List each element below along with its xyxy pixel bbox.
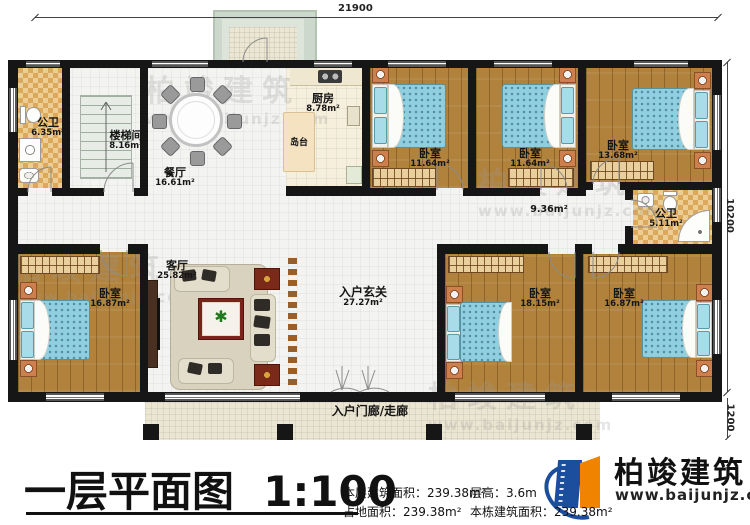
dimension-line-top xyxy=(35,17,718,18)
sink xyxy=(637,193,654,207)
bed-sheet xyxy=(498,302,512,362)
brand-site: www.baijunjz.com xyxy=(615,486,750,504)
back-porch-tile xyxy=(229,27,297,64)
window xyxy=(494,61,552,67)
nightstand xyxy=(694,152,711,169)
wall xyxy=(618,244,712,254)
nightstand xyxy=(559,66,576,83)
bed-sheet xyxy=(678,88,694,150)
title-block: 一层平面图 1:100 本层建筑面积：239.38m² 占地面积：239.38m… xyxy=(0,440,750,525)
wall xyxy=(625,226,633,244)
side-table xyxy=(254,364,280,386)
pillow xyxy=(21,302,34,329)
porch-pillar xyxy=(143,424,159,440)
window xyxy=(713,95,721,150)
wall xyxy=(578,182,593,190)
dining-chair xyxy=(190,77,205,92)
wall xyxy=(52,188,104,196)
wardrobe xyxy=(372,168,436,187)
room-label-dining: 餐厅16.61m² xyxy=(146,167,204,189)
logo-tower-blue xyxy=(554,460,582,508)
room-label-bedroom-left: 卧室16.87m² xyxy=(78,288,142,310)
room-label-public-bath-1: 公卫6.35m² xyxy=(22,117,74,139)
bed-sheet xyxy=(682,300,696,358)
window xyxy=(713,300,721,354)
washing-machine xyxy=(19,138,41,162)
stat-floor-height: 层高：3.6m xyxy=(470,484,537,501)
wall xyxy=(134,188,148,196)
nightstand xyxy=(696,284,713,301)
nightstand xyxy=(559,150,576,167)
plant: ✱ xyxy=(212,308,230,326)
dimension-top: 21900 xyxy=(338,3,373,14)
wall xyxy=(468,68,476,196)
window xyxy=(713,188,721,222)
room-label-porch: 入户门廊/走廊 xyxy=(300,405,440,418)
wall xyxy=(140,244,148,392)
window xyxy=(165,393,300,401)
porch-pillar xyxy=(277,424,293,440)
pillow xyxy=(695,92,708,119)
window xyxy=(634,61,688,67)
stat-land-area: 占地面积：239.38m² xyxy=(343,503,462,520)
wall xyxy=(437,244,548,254)
porch-pillar xyxy=(576,424,592,440)
wall xyxy=(8,244,100,254)
room-label-living: 客厅25.82m² xyxy=(148,260,206,282)
nightstand xyxy=(446,286,463,303)
dining-chair xyxy=(152,114,167,129)
pillow xyxy=(695,121,708,148)
room-label-hallway: 9.36m² xyxy=(526,205,572,216)
stat-total-area: 本栋建筑面积：239.38m² xyxy=(470,503,613,520)
pillow xyxy=(21,331,34,358)
floor-plan-page: 21900 10200 1200 柏竣建筑www.baijunjz.com 柏竣… xyxy=(0,0,750,525)
nightstand xyxy=(446,362,463,379)
pillow xyxy=(374,117,387,144)
dining-table-inner xyxy=(177,101,215,139)
kitchen-cabinet xyxy=(346,166,362,184)
window xyxy=(9,300,17,360)
dimension-right: 10200 xyxy=(724,198,735,233)
wall xyxy=(463,188,476,196)
room-label-bedroom-top-1: 卧室11.64m² xyxy=(402,148,458,170)
room-label-public-bath-2: 公卫5.11m² xyxy=(640,208,692,230)
pillow xyxy=(374,87,387,114)
nightstand xyxy=(696,360,713,377)
window xyxy=(612,393,680,401)
sofa-cushion xyxy=(254,334,270,346)
sofa-cushion xyxy=(254,299,270,311)
room-label-bedroom-top-2: 卧室11.64m² xyxy=(502,148,558,170)
room-label-stairwell: 楼梯间8.16m² xyxy=(96,130,156,152)
wardrobe xyxy=(20,256,100,274)
nightstand xyxy=(20,360,37,377)
sofa-cushion xyxy=(253,315,271,329)
nightstand xyxy=(694,72,711,89)
title-underline xyxy=(26,512,358,515)
wall xyxy=(8,60,722,68)
window xyxy=(152,61,208,67)
dining-chair xyxy=(190,151,205,166)
pillow xyxy=(447,334,460,360)
wall xyxy=(286,186,370,196)
room-label-bedroom-top-3: 卧室13.68m² xyxy=(590,140,646,162)
window xyxy=(46,393,104,401)
side-table xyxy=(254,268,280,290)
room-label-kitchen: 厨房8.78m² xyxy=(296,93,350,115)
wall xyxy=(575,244,583,392)
pillow xyxy=(697,331,710,356)
page-title: 一层平面图 1:100 xyxy=(24,458,397,519)
sofa-cushion xyxy=(208,363,222,374)
window xyxy=(388,61,446,67)
window xyxy=(455,393,545,401)
window xyxy=(9,88,17,132)
wall xyxy=(620,182,712,190)
wardrobe xyxy=(508,168,574,187)
wall xyxy=(362,68,370,196)
pillow xyxy=(561,87,574,114)
wall xyxy=(437,244,445,392)
dimension-right-lower: 1200 xyxy=(724,404,735,432)
room-label-foyer: 入户玄关27.27m² xyxy=(320,286,406,309)
porch-pillar xyxy=(426,424,442,440)
wardrobe xyxy=(588,256,668,273)
wardrobe xyxy=(448,256,524,273)
tv xyxy=(157,298,160,350)
cooktop xyxy=(318,70,342,83)
nightstand xyxy=(372,150,389,167)
nightstand xyxy=(372,66,389,83)
pillow xyxy=(561,117,574,144)
partition-screen xyxy=(288,258,297,388)
bed-sheet xyxy=(544,84,560,148)
dining-chair xyxy=(227,114,242,129)
wall xyxy=(370,188,436,196)
wall xyxy=(476,188,540,196)
sink xyxy=(19,168,39,183)
room-label-island: 岛台 xyxy=(283,138,315,148)
room-label-bedroom-bottom-2: 卧室16.87m² xyxy=(592,288,656,310)
wall xyxy=(625,184,633,200)
window xyxy=(314,61,352,67)
wall xyxy=(8,188,28,196)
pillow xyxy=(447,306,460,332)
nightstand xyxy=(20,282,37,299)
logo-tower-orange xyxy=(580,456,600,508)
wall xyxy=(578,68,586,190)
room-label-bedroom-bottom-1: 卧室18.15m² xyxy=(510,288,570,310)
window xyxy=(26,61,60,67)
pillow xyxy=(697,304,710,329)
wardrobe xyxy=(590,161,654,180)
stat-floor-area: 本层建筑面积：239.38m² xyxy=(343,484,486,501)
